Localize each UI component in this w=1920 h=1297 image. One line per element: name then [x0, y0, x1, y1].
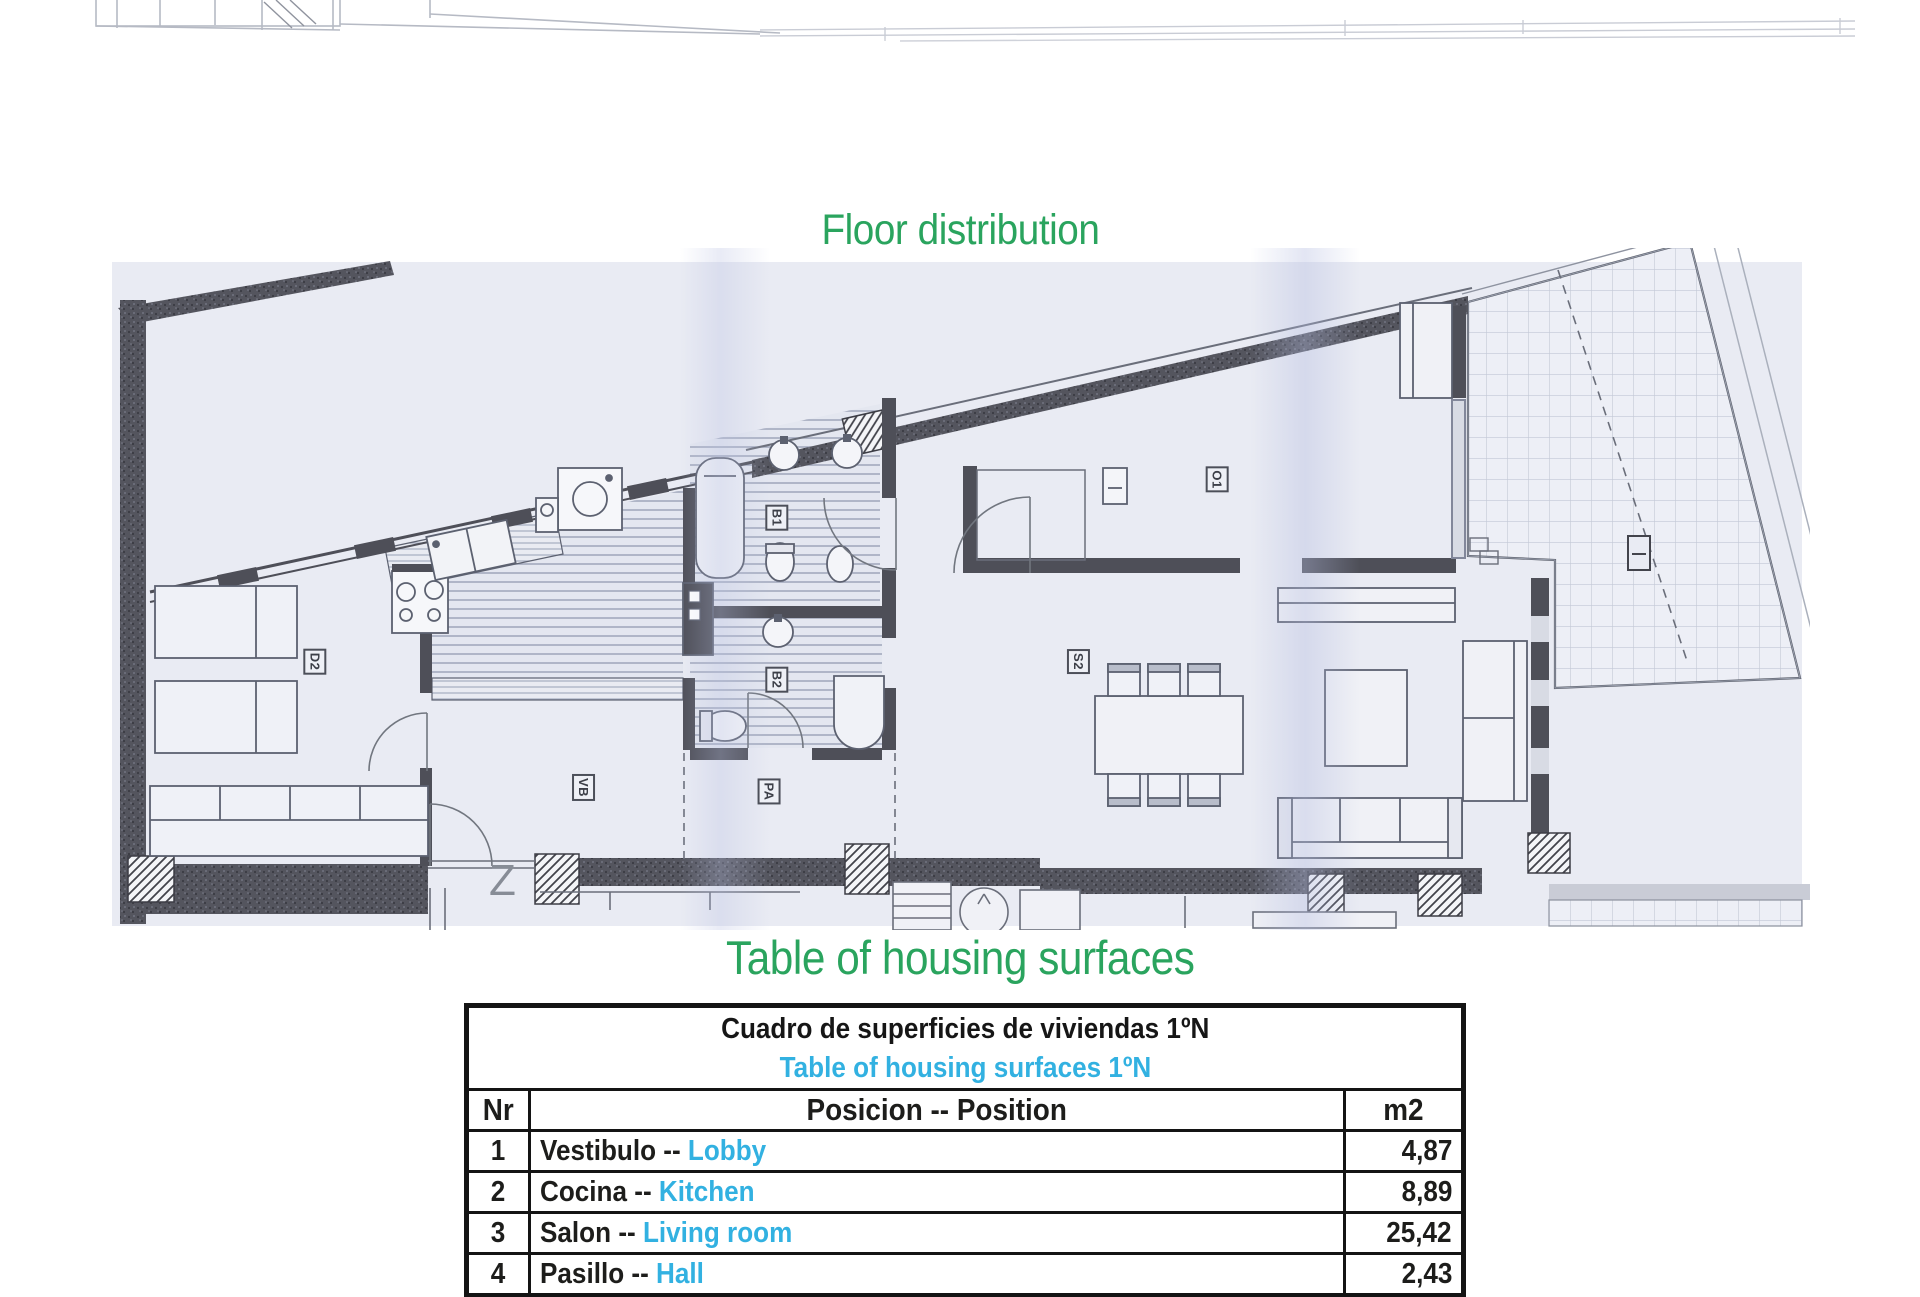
top-cutoff-drawing	[0, 0, 1920, 60]
table-title-en: Table of housing surfaces 1ºN	[469, 1049, 1461, 1087]
row-m2: 25,42	[1344, 1213, 1463, 1254]
table-row: 1Vestibulo -- Lobby4,87	[467, 1131, 1463, 1172]
row-m2: 4,87	[1344, 1131, 1463, 1172]
row-position: Salon -- Living room	[529, 1213, 1344, 1254]
row-position: Cocina -- Kitchen	[529, 1172, 1344, 1213]
north-mark: Z	[489, 856, 516, 906]
col-header-nr: Nr	[467, 1090, 529, 1131]
page: { "headings": { "floor": "Floor distribu…	[0, 0, 1920, 1280]
floor-plan-drawing	[100, 248, 1810, 930]
room-code-label: D2	[303, 649, 326, 675]
housing-surfaces-table: Cuadro de superficies de viviendas 1ºN T…	[465, 1004, 1465, 1297]
room-code-label: VB	[572, 774, 595, 801]
room-code-label: S2	[1067, 649, 1090, 674]
table-title-row: Cuadro de superficies de viviendas 1ºN T…	[467, 1006, 1463, 1090]
row-m2: 8,89	[1344, 1172, 1463, 1213]
table-row: 4Pasillo -- Hall2,43	[467, 1254, 1463, 1296]
room-code-label: PA	[758, 778, 781, 804]
table-header-row: Nr Posicion -- Position m2	[467, 1090, 1463, 1131]
row-position: Vestibulo -- Lobby	[529, 1131, 1344, 1172]
row-nr: 1	[467, 1131, 529, 1172]
surfaces-table-heading: Table of housing surfaces	[0, 930, 1920, 985]
room-code-label: B1	[765, 505, 788, 531]
row-nr: 4	[467, 1254, 529, 1296]
row-nr: 3	[467, 1213, 529, 1254]
table-row: 2Cocina -- Kitchen8,89	[467, 1172, 1463, 1213]
row-nr: 2	[467, 1172, 529, 1213]
col-header-m2: m2	[1344, 1090, 1463, 1131]
room-code-label: B2	[765, 667, 788, 693]
row-m2: 2,43	[1344, 1254, 1463, 1296]
room-code-label: O1	[1206, 466, 1229, 492]
col-header-position: Posicion -- Position	[529, 1090, 1344, 1131]
floor-plan	[100, 248, 1810, 930]
table-row: 3Salon -- Living room25,42	[467, 1213, 1463, 1254]
table-title-es: Cuadro de superficies de viviendas 1ºN	[469, 1009, 1461, 1049]
row-position: Pasillo -- Hall	[529, 1254, 1344, 1296]
